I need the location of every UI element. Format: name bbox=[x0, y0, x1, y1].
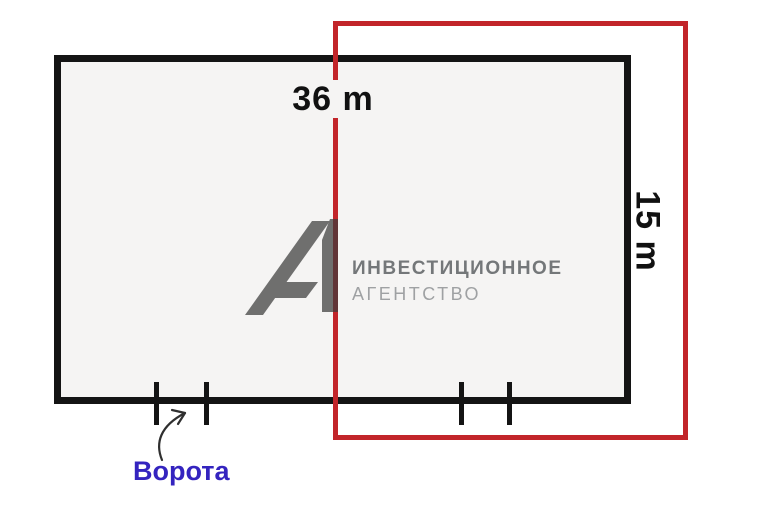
height-dimension-label: 15 m bbox=[628, 190, 667, 272]
floor-plan-canvas: 36 m 15 m ИНВЕСТИЦИОННОЕ АГЕНТСТВО Ворот… bbox=[0, 0, 770, 510]
width-dimension-label: 36 m bbox=[284, 80, 382, 118]
gates-label: Ворота bbox=[133, 456, 230, 487]
gate-tick bbox=[204, 382, 209, 425]
